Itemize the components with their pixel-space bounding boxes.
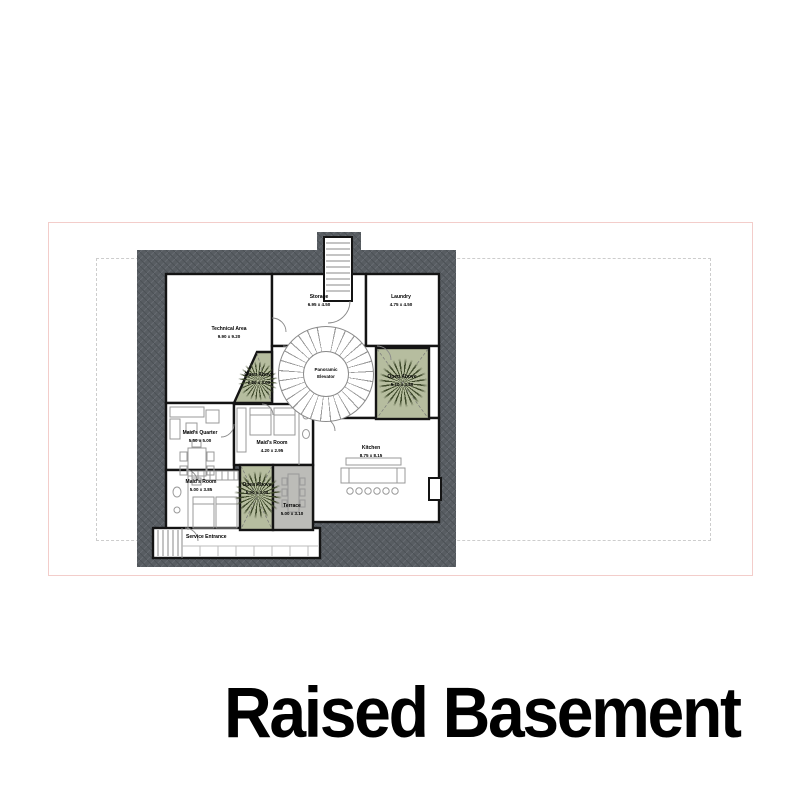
room-laundry [366,274,439,346]
label-shaft-right: Open Above 5.10 x 3.80 [362,374,442,389]
label-laundry: Laundry 4.75 x 4.50 [361,294,441,309]
elevator-label-line1: Panoramic [314,367,337,374]
label-shaft-left: Open Above 2.60 x 3.00 [219,372,299,387]
label-technical-area: Technical Area 9.90 x 9.20 [189,326,269,341]
floor-plan-page: Panoramic Elevator Technical Area 9.90 x… [0,0,800,800]
label-maids-quarter: Maid's Quarter 5.50 x 5.00 [160,430,240,445]
panoramic-elevator: Panoramic Elevator [303,351,349,397]
elevator-label-line2: Elevator [317,374,335,381]
label-storage: Storage 6.95 x 4.50 [279,294,359,309]
kitchen-niche [429,478,441,500]
label-kitchen: Kitchen 8.75 x 8.15 [331,445,411,460]
label-terrace: Terrace 5.00 x 3.10 [252,503,332,518]
label-service-entrance: Service Entrance [186,534,227,542]
page-title: Raised Basement [224,678,740,749]
label-shaft-bottom: Open Above 5.00 x 3.00 [217,482,297,497]
label-maids-room-mid: Maid's Room 4.20 x 2.95 [232,440,312,455]
